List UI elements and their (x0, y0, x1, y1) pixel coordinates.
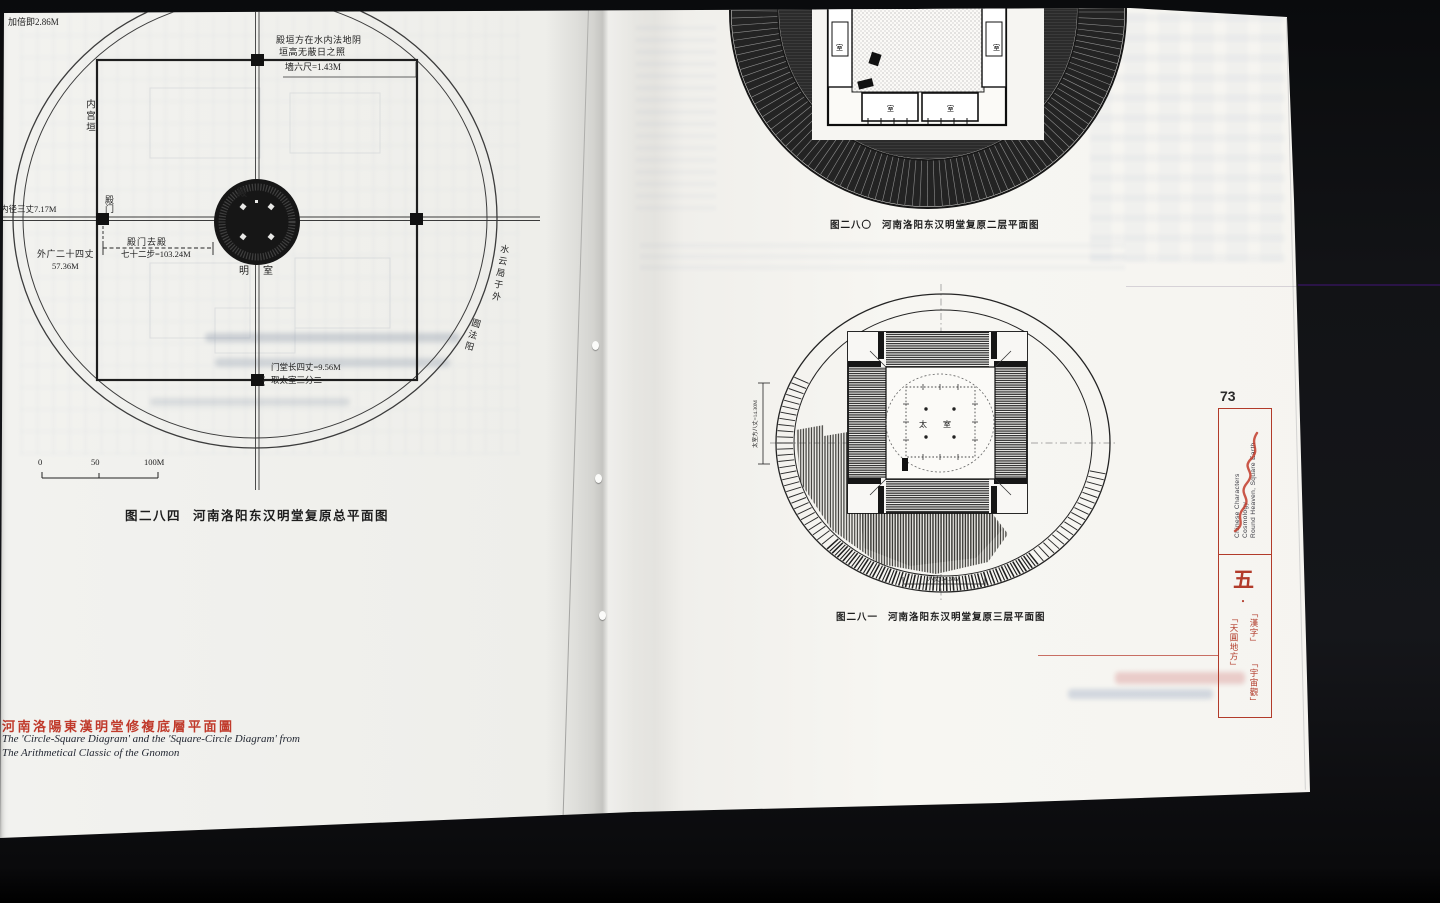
fig280-stippled-terrace (852, 0, 984, 92)
page-number: 73 (1220, 388, 1236, 404)
figure-280-plan-svg: 室 室 室 室 (706, 0, 1156, 238)
scale-label-0: 0 (38, 457, 42, 467)
ann-taishi-note: 取太室三分二 (271, 374, 322, 386)
figure-280-caption-number: 图二八〇 (830, 221, 872, 231)
ann-gate-to-hall-2: 七十二步=103.24M (121, 248, 191, 260)
chapter-dot: ・ (1238, 593, 1248, 608)
fig281-stair-mark (902, 458, 908, 471)
fig281-tai-label: 太 (919, 419, 927, 429)
figure-281-caption-number: 图二八一 (836, 613, 878, 623)
fig281-shi-label: 室 (943, 419, 951, 429)
stitch-notch-2 (595, 474, 602, 483)
scan-artifact-line (1298, 284, 1440, 286)
stitch-notch-1 (592, 341, 599, 350)
ann-hall-gate: 殿门 (103, 195, 116, 213)
chapter-number: 五 (1233, 564, 1254, 594)
figure-284-caption-number: 图二八四 (125, 509, 181, 523)
figure-280-caption: 图二八〇河南洛阳东汉明堂复原二层平面图 (830, 217, 1040, 231)
book-spread: 加倍即2.86M 殿垣方在水内法地阴 垣高无蔽日之照 墙六尺=1.43M 内宫垣… (0, 0, 1440, 903)
left-heading-english-1: The 'Circle-Square Diagram' and the 'Squ… (2, 733, 300, 745)
left-heading-english-2: The Arithmetical Classic of the Gnomon (2, 747, 179, 759)
scale-bar (42, 472, 158, 478)
figure-284-caption: 图二八四河南洛阳东汉明堂复原总平面图 (125, 505, 389, 524)
tag-hanzi: 「漢字」 (1248, 609, 1259, 647)
ann-wall-dim: 墙六尺=1.43M (285, 60, 341, 73)
gutter-shading (545, 8, 665, 834)
right-ghost-left-column (636, 20, 716, 210)
book-photo-screenshot: { "page": { "number": "73" }, "left": { … (0, 0, 1440, 903)
fig281-dim-bottom-text: 八丈 14.30M (928, 575, 961, 583)
fore-edge-line-1 (1286, 18, 1306, 790)
scale-label-100: 100M (144, 457, 164, 467)
fig280-room-label-s1: 室 (887, 104, 894, 113)
tag-tianyuan: 「天圓地方」 (1228, 614, 1239, 671)
ann-top-left: 加倍即2.86M (8, 15, 59, 28)
fig280-room-label-west: 室 (836, 43, 843, 52)
figure-281-caption: 图二八一河南洛阳东汉明堂复原三层平面图 (836, 609, 1046, 623)
photo-background: 加倍即2.86M 殿垣方在水内法地阴 垣高无蔽日之照 墙六尺=1.43M 内宫垣… (0, 0, 1440, 903)
ann-outer-width-1: 外广二十四丈 (37, 247, 94, 260)
fig281-dim-left-text: 太室方八丈=14.30M (751, 400, 759, 448)
ann-wall-note-2: 垣高无蔽日之照 (279, 45, 346, 58)
right-ghost-blue-text (1068, 689, 1213, 699)
fig280-room-label-s2: 室 (947, 104, 954, 113)
figure-284-caption-title: 河南洛阳东汉明堂复原总平面图 (193, 509, 389, 523)
ann-gate-to-hall-1: 殿门去殿 (127, 235, 167, 248)
figure-280-caption-title: 河南洛阳东汉明堂复原二层平面图 (882, 221, 1040, 231)
central-hall (214, 179, 300, 265)
figure-281-caption-title: 河南洛阳东汉明堂复原三层平面图 (888, 613, 1046, 623)
gutter-seam-line (562, 8, 589, 834)
tag-cosmos: 「宇宙觀」 (1248, 659, 1259, 707)
ann-mingshi-2: 室 (263, 262, 273, 277)
red-script-calligraphy-icon (1223, 427, 1267, 537)
ann-gate-hall-dim: 门堂长四丈=9.56M (271, 361, 341, 373)
ann-outer-width-2: 57.36M (52, 261, 79, 271)
scale-label-50: 50 (91, 457, 100, 467)
ann-inner-wall: 内宫垣 (82, 99, 96, 134)
figure-281-plan-svg: 太 室 太室方八丈=14.30M 八丈 14.30M (740, 262, 1150, 612)
ann-inner-diameter: 内径三丈7.17M (0, 203, 56, 215)
tab-divider (1219, 554, 1271, 555)
red-rule (1038, 655, 1218, 656)
ann-hall-label: 殿 (237, 184, 247, 199)
stitch-notch-3 (599, 611, 606, 620)
fig281-dim-left-lines (758, 383, 770, 464)
chapter-tab: Chinese Characters Cosmology Round Heave… (1218, 408, 1272, 718)
fig280-room-label-east: 室 (993, 43, 1000, 52)
ann-mingshi-1: 明 (239, 262, 249, 277)
scan-line-on-page (1126, 286, 1302, 287)
